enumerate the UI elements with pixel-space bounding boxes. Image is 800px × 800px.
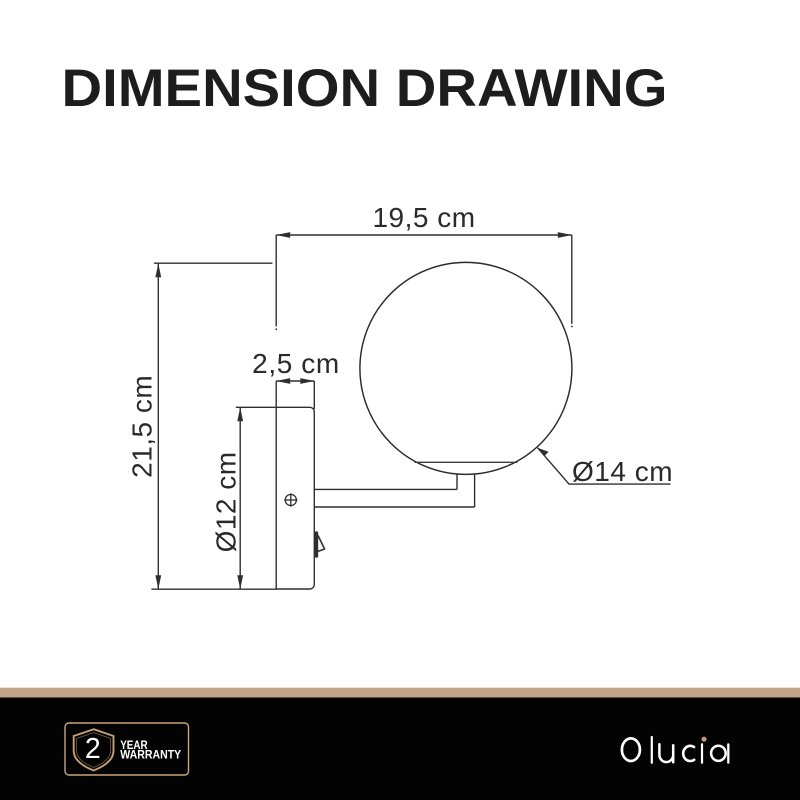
svg-text:DIMENSION DRAWING: DIMENSION DRAWING [62, 59, 668, 118]
svg-text:2,5 cm: 2,5 cm [252, 348, 340, 379]
svg-text:2: 2 [85, 733, 101, 765]
svg-text:21,5 cm: 21,5 cm [127, 375, 158, 478]
svg-text:WARRANTY: WARRANTY [120, 748, 181, 762]
svg-text:19,5 cm: 19,5 cm [372, 202, 475, 233]
svg-text:Ø12 cm: Ø12 cm [211, 451, 242, 552]
svg-text:Ø14 cm: Ø14 cm [572, 456, 673, 487]
